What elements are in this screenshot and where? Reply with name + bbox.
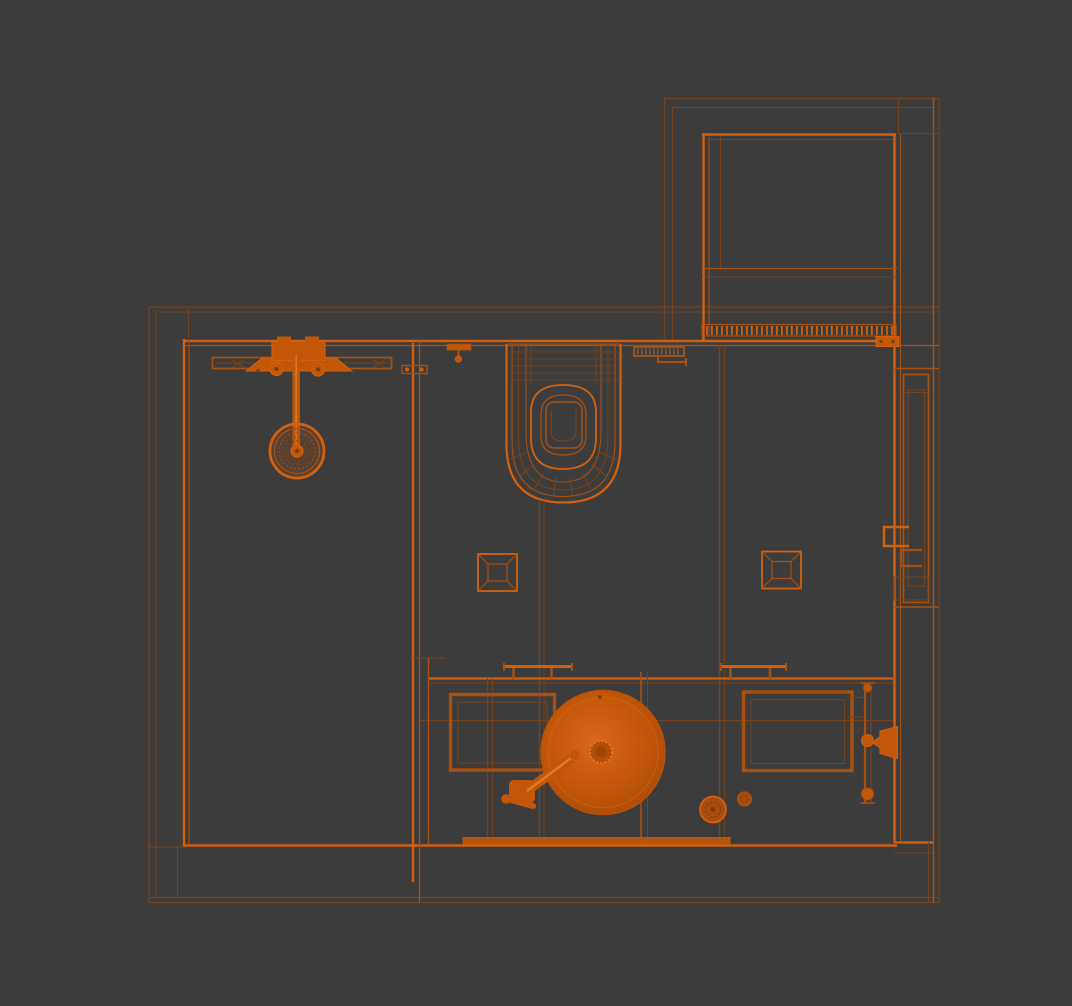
partition-clamp — [402, 366, 427, 374]
towel-bar-left — [503, 663, 573, 679]
threshold-strip — [463, 838, 730, 845]
towel-bar-right — [720, 663, 787, 679]
entry-door — [884, 369, 939, 608]
base-cabinet-right — [744, 692, 853, 771]
floor-drain-left — [478, 554, 517, 591]
rain-shower-head — [270, 424, 324, 478]
sink-drain — [590, 741, 612, 763]
overflow-hole — [598, 695, 602, 699]
shower-zone — [213, 337, 472, 904]
floor-drain-right — [762, 552, 801, 589]
zone-divider — [720, 345, 725, 843]
round-tray — [700, 797, 726, 823]
viewport-canvas[interactable] — [0, 0, 1072, 1006]
supply-pipe — [540, 500, 545, 845]
wall-spout — [862, 727, 898, 759]
linear-grate — [702, 325, 899, 347]
toilet-flush-plate — [634, 347, 686, 366]
viewport-background: { "viewport": { "description": "Orthogra… — [0, 0, 1072, 1006]
vessel-sink — [541, 691, 665, 815]
wall-hook — [447, 344, 471, 362]
cup — [738, 792, 752, 806]
